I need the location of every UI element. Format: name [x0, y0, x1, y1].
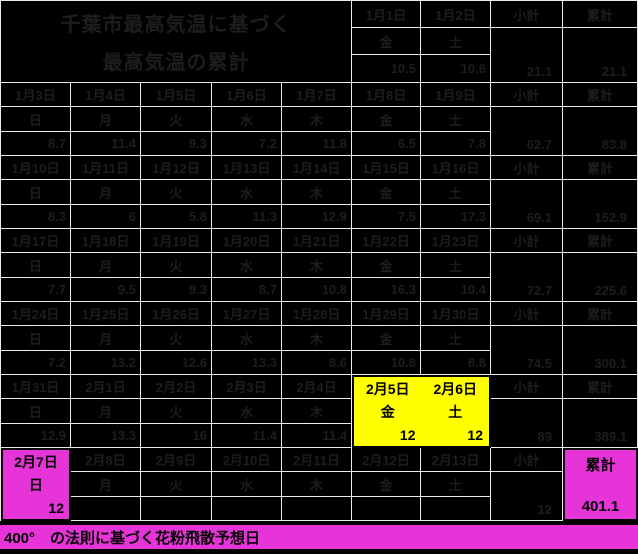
date-cell: 1月10日	[1, 156, 71, 180]
weekday-cell: 土	[421, 180, 491, 205]
weekday-cell: 月	[71, 107, 141, 132]
temp-value-cell: 13.3	[212, 351, 282, 375]
date-cell: 2月13日	[421, 448, 491, 472]
forecast-caption-bar: 400° の法則に基づく花粉飛散予想日	[0, 525, 638, 549]
weekday-cell: 火	[141, 253, 212, 278]
date-cell: 1月2日	[421, 1, 491, 28]
weekday-cell: 金	[352, 472, 421, 497]
cumulative-value-cell: 152.9	[563, 180, 638, 229]
temp-value-cell: 6.5	[352, 132, 421, 156]
temp-value-cell	[71, 497, 141, 521]
date-cell: 2月8日	[71, 448, 141, 472]
date-cell: 1月25日	[71, 302, 141, 326]
temp-value-cell	[282, 497, 352, 521]
temp-value-cell: 13.3	[71, 424, 141, 448]
temp-value-cell	[212, 497, 282, 521]
weekday-cell: 土	[422, 400, 490, 423]
temp-value-cell: 5.8	[141, 205, 212, 229]
temp-value-cell: 10.4	[421, 278, 491, 302]
highlight-feb5-6: 2月5日2月6日金土1212	[352, 375, 491, 448]
temp-value-cell: 9.5	[71, 278, 141, 302]
date-cell: 2月9日	[141, 448, 212, 472]
weekday-cell: 日	[1, 107, 71, 132]
date-cell: 1月18日	[71, 229, 141, 253]
weekday-cell: 日	[1, 326, 71, 351]
temp-value-cell: 8.6	[282, 351, 352, 375]
weekday-cell: 月	[71, 472, 141, 497]
subtotal-label-cell: 小計	[491, 156, 563, 180]
weekday-cell: 火	[141, 399, 212, 424]
date-cell: 1月22日	[352, 229, 421, 253]
forecast-caption-text: 400° の法則に基づく花粉飛散予想日	[4, 527, 260, 548]
cumulative-label-cell: 累計	[563, 1, 638, 28]
weekday-cell: 木	[282, 107, 352, 132]
temp-value-cell: 10.8	[352, 351, 421, 375]
date-cell: 1月8日	[352, 83, 421, 107]
cumulative-value-cell: 389.1	[563, 399, 638, 448]
temp-value-cell: 16	[141, 424, 212, 448]
weekday-cell: 日	[1, 253, 71, 278]
weekday-cell: 金	[352, 107, 421, 132]
temp-value-cell	[352, 497, 421, 521]
date-cell: 1月15日	[352, 156, 421, 180]
date-cell: 1月31日	[1, 375, 71, 399]
cumulative-value-cell: 300.1	[563, 326, 638, 375]
pollen-forecast-sheet: 千葉市最高気温に基づく最高気温の累計1月1日金10.51月2日土10.6小計21…	[0, 0, 638, 554]
temp-value-cell: 7.2	[1, 351, 71, 375]
date-cell: 2月10日	[212, 448, 282, 472]
date-cell: 1月28日	[282, 302, 352, 326]
subtotal-label-cell: 小計	[491, 83, 563, 107]
weekday-cell: 金	[352, 28, 421, 55]
subtotal-label-cell: 小計	[491, 1, 563, 28]
weekday-cell: 土	[421, 107, 491, 132]
subtotal-value-cell: 12	[491, 472, 563, 521]
date-cell: 1月26日	[141, 302, 212, 326]
temp-value-cell: 17.3	[421, 205, 491, 229]
temp-value-cell: 11.4	[71, 132, 141, 156]
weekday-cell: 火	[141, 107, 212, 132]
temp-value-cell: 11.8	[282, 132, 352, 156]
temp-value-cell: 7.7	[1, 278, 71, 302]
weekday-cell: 木	[282, 399, 352, 424]
temp-value-cell: 12.9	[282, 205, 352, 229]
date-cell: 1月13日	[212, 156, 282, 180]
subtotal-value-cell: 72.7	[491, 253, 563, 302]
temp-value-cell: 7.5	[352, 205, 421, 229]
subtotal-label-cell: 小計	[491, 229, 563, 253]
date-cell: 1月24日	[1, 302, 71, 326]
weekday-cell: 水	[212, 399, 282, 424]
temp-value-cell: 8.3	[1, 205, 71, 229]
date-cell: 1月1日	[352, 1, 421, 28]
cumulative-label: 累計	[565, 454, 636, 475]
cumulative-label-cell: 累計	[563, 156, 638, 180]
weekday-cell: 木	[282, 326, 352, 351]
cumulative-label-cell: 累計	[563, 375, 638, 399]
temp-value-cell: 12.6	[141, 351, 212, 375]
subtotal-value-cell: 74.5	[491, 326, 563, 375]
subtotal-label-cell: 小計	[491, 375, 563, 399]
date-cell: 2月1日	[71, 375, 141, 399]
date-cell: 2月12日	[352, 448, 421, 472]
subtotal-value-cell: 21.1	[491, 28, 563, 83]
date-cell: 2月11日	[282, 448, 352, 472]
date-cell: 1月29日	[352, 302, 421, 326]
cumulative-value: 401.1	[565, 498, 636, 515]
date-cell: 1月20日	[212, 229, 282, 253]
date-cell: 1月6日	[212, 83, 282, 107]
date-cell: 1月21日	[282, 229, 352, 253]
temp-value-cell: 10.8	[282, 278, 352, 302]
cumulative-value-cell: 83.8	[563, 107, 638, 156]
temp-value-cell: 10.6	[421, 55, 491, 83]
date-cell: 1月4日	[71, 83, 141, 107]
date-cell: 2月4日	[282, 375, 352, 399]
subtotal-value-cell: 69.1	[491, 180, 563, 229]
weekday-cell: 金	[354, 400, 422, 423]
temp-value-cell: 12	[3, 496, 69, 519]
weekday-cell: 木	[282, 472, 352, 497]
weekday-cell: 月	[71, 326, 141, 351]
weekday-cell: 火	[141, 326, 212, 351]
temp-value-cell: 11.4	[212, 424, 282, 448]
date-cell: 1月3日	[1, 83, 71, 107]
temperature-table: 千葉市最高気温に基づく最高気温の累計1月1日金10.51月2日土10.6小計21…	[0, 0, 638, 521]
temp-value-cell: 11.3	[212, 205, 282, 229]
subtotal-label-cell: 小計	[491, 448, 563, 472]
subtotal-label-cell: 小計	[491, 302, 563, 326]
subtotal-value-cell: 89	[491, 399, 563, 448]
table-title: 千葉市最高気温に基づく最高気温の累計	[1, 1, 352, 83]
weekday-cell: 金	[352, 253, 421, 278]
weekday-cell: 木	[282, 253, 352, 278]
weekday-cell: 水	[212, 472, 282, 497]
date-cell: 2月3日	[212, 375, 282, 399]
cumulative-label-cell: 累計	[563, 229, 638, 253]
temp-value-cell: 13.2	[71, 351, 141, 375]
temp-value-cell: 12	[354, 423, 422, 446]
cumulative-value-cell: 225.6	[563, 253, 638, 302]
date-cell: 1月12日	[141, 156, 212, 180]
date-cell: 1月7日	[282, 83, 352, 107]
weekday-cell: 木	[282, 180, 352, 205]
weekday-cell: 月	[71, 180, 141, 205]
temp-value-cell: 9.3	[141, 132, 212, 156]
temp-value-cell: 7.8	[421, 132, 491, 156]
weekday-cell: 月	[71, 399, 141, 424]
subtotal-value-cell: 62.7	[491, 107, 563, 156]
date-cell: 1月5日	[141, 83, 212, 107]
weekday-cell: 土	[421, 472, 491, 497]
table-title-line2: 最高気温の累計	[103, 46, 250, 75]
weekday-cell: 水	[212, 253, 282, 278]
weekday-cell: 金	[352, 180, 421, 205]
temp-value-cell: 12	[422, 423, 490, 446]
date-cell: 2月2日	[141, 375, 212, 399]
date-cell: 1月9日	[421, 83, 491, 107]
temp-value-cell: 8.8	[421, 351, 491, 375]
date-cell: 1月19日	[141, 229, 212, 253]
temp-value-cell: 16.3	[352, 278, 421, 302]
cumulative-label-cell: 累計	[563, 83, 638, 107]
cumulative-value-cell: 21.1	[563, 28, 638, 83]
date-cell: 2月5日	[354, 377, 422, 400]
table-title-line1: 千葉市最高気温に基づく	[61, 8, 292, 37]
weekday-cell: 月	[71, 253, 141, 278]
date-cell: 1月16日	[421, 156, 491, 180]
date-cell: 1月14日	[282, 156, 352, 180]
cumulative-label-cell: 累計	[563, 302, 638, 326]
weekday-cell: 土	[421, 326, 491, 351]
date-cell: 1月23日	[421, 229, 491, 253]
weekday-cell: 土	[421, 253, 491, 278]
weekday-cell: 日	[1, 399, 71, 424]
weekday-cell: 水	[212, 107, 282, 132]
date-cell: 2月6日	[422, 377, 490, 400]
weekday-cell: 水	[212, 180, 282, 205]
temp-value-cell: 12.9	[1, 424, 71, 448]
temp-value-cell: 10.5	[352, 55, 421, 83]
temp-value-cell: 9.3	[141, 278, 212, 302]
weekday-cell: 金	[352, 326, 421, 351]
date-cell: 1月27日	[212, 302, 282, 326]
bottom-strip	[0, 549, 638, 554]
weekday-cell: 土	[421, 28, 491, 55]
temp-value-cell: 11.4	[282, 424, 352, 448]
date-cell: 1月30日	[421, 302, 491, 326]
temp-value-cell: 8.7	[1, 132, 71, 156]
date-cell: 1月17日	[1, 229, 71, 253]
temp-value-cell: 8.7	[212, 278, 282, 302]
date-cell: 1月11日	[71, 156, 141, 180]
temp-value-cell: 6	[71, 205, 141, 229]
temp-value-cell	[421, 497, 491, 521]
weekday-cell: 水	[212, 326, 282, 351]
highlight-feb7: 2月7日日12	[1, 448, 71, 521]
weekday-cell: 火	[141, 472, 212, 497]
date-cell: 2月7日	[3, 450, 69, 473]
weekday-cell: 火	[141, 180, 212, 205]
final-cumulative-cell: 累計401.1	[563, 448, 638, 521]
temp-value-cell	[141, 497, 212, 521]
weekday-cell: 日	[3, 473, 69, 496]
temp-value-cell: 7.2	[212, 132, 282, 156]
weekday-cell: 日	[1, 180, 71, 205]
